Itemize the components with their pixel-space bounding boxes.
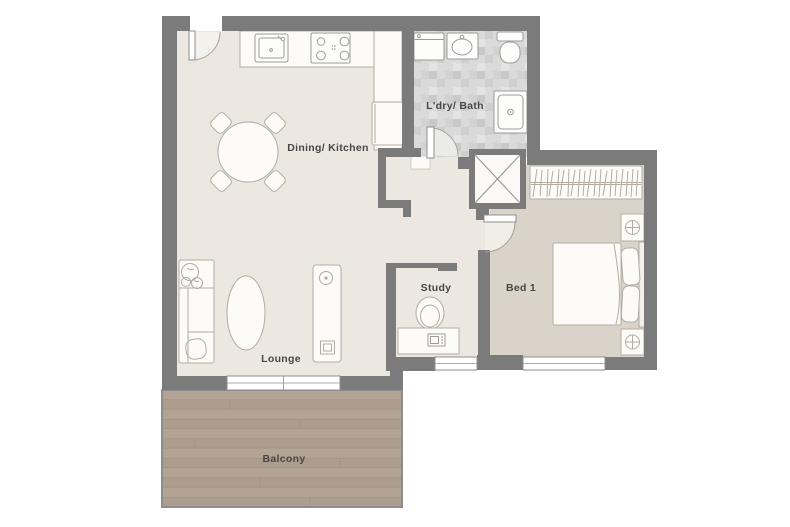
coffee-table-oval <box>227 276 265 350</box>
wardrobe <box>530 166 642 199</box>
nightstand-lamp-bottom <box>621 329 644 355</box>
service-shaft <box>469 149 526 209</box>
balcony-floor <box>162 390 402 507</box>
nightstand-lamp-top <box>621 214 644 241</box>
stove-cooktop <box>311 33 350 63</box>
shower <box>494 91 527 133</box>
sofa <box>179 260 214 363</box>
dining-table <box>218 122 278 182</box>
desk-chair <box>416 297 444 329</box>
lounge-label: Lounge <box>261 353 301 365</box>
study-window <box>435 357 477 370</box>
pillow <box>621 247 641 285</box>
lounge-sliding-door <box>227 376 340 390</box>
fridge <box>372 102 403 145</box>
tv-unit <box>313 265 341 362</box>
dining-kitchen-label: Dining/ Kitchen <box>287 142 369 154</box>
bedroom-window <box>523 357 605 370</box>
double-bed <box>553 243 640 325</box>
toilet <box>497 32 523 63</box>
bed1-label: Bed 1 <box>506 282 536 294</box>
kitchen-sink <box>255 34 288 62</box>
bathroom-vanity-sink <box>447 33 478 59</box>
washing-machine <box>414 33 444 60</box>
dining-table-set <box>209 111 287 193</box>
pillow <box>621 286 640 323</box>
balcony-label: Balcony <box>263 453 306 465</box>
floor-plan-canvas: Dining/ Kitchen L'dry/ Bath Bed 1 Study … <box>0 0 790 527</box>
study-label: Study <box>421 282 452 294</box>
floor-plan: Dining/ Kitchen L'dry/ Bath Bed 1 Study … <box>0 0 790 527</box>
ldry-bath-label: L'dry/ Bath <box>426 100 484 112</box>
